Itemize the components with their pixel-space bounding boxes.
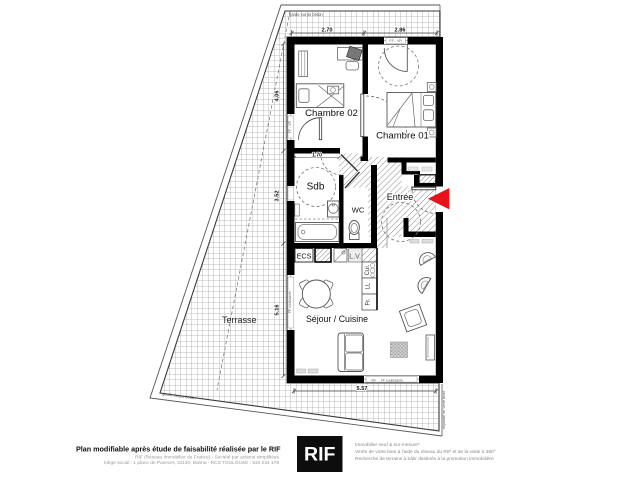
svg-text:4.06: 4.06 — [275, 91, 281, 102]
svg-text:ECS: ECS — [297, 252, 312, 261]
svg-text:FF coulissante: FF coulissante — [381, 378, 403, 382]
svg-text:Entrée: Entrée — [387, 192, 414, 202]
svg-text:Sdb: Sdb — [307, 182, 325, 193]
svg-text:RIF (Réseau Immobilier de Fran: RIF (Réseau Immobilier de France) - Soci… — [135, 454, 280, 460]
svg-text:RIF: RIF — [304, 444, 336, 466]
svg-text:Terrasse: Terrasse — [222, 315, 257, 325]
svg-text:2.70: 2.70 — [322, 28, 333, 34]
svg-text:Recherche de terrains à bâtir: Recherche de terrains à bâtir destinés à… — [355, 456, 494, 462]
svg-text:garde corps béton: garde corps béton — [289, 12, 323, 17]
svg-text:Siège social : 1 place de Pave: Siège social : 1 place de Paveurs, 31130… — [104, 460, 280, 466]
svg-text:Immobilier neuf & sur-mesure*: Immobilier neuf & sur-mesure* — [355, 442, 420, 448]
svg-text:2.86: 2.86 — [395, 28, 406, 34]
svg-text:WC: WC — [352, 206, 365, 215]
svg-text:Séjour / Cuisine: Séjour / Cuisine — [306, 314, 368, 324]
svg-text:1.70: 1.70 — [312, 153, 322, 159]
svg-text:3.52: 3.52 — [275, 191, 281, 202]
svg-text:Chambre 02: Chambre 02 — [305, 108, 358, 119]
svg-text:FF - VR: FF - VR — [389, 39, 402, 43]
svg-text:Chambre 01: Chambre 01 — [376, 131, 429, 142]
svg-text:LL: LL — [366, 282, 372, 289]
svg-text:Fr.: Fr. — [366, 298, 372, 305]
svg-text:séparatif en verre brisé: séparatif en verre brisé — [442, 391, 446, 430]
svg-text:FF - VR: FF - VR — [288, 121, 292, 133]
svg-text:Vente de votre bien à l'aide d: Vente de votre bien à l'aide du réseau d… — [355, 449, 496, 455]
svg-text:Plan modifiable après étude de: Plan modifiable après étude de faisabili… — [76, 444, 281, 453]
svg-text:5.57: 5.57 — [357, 386, 368, 392]
svg-text:VR: VR — [371, 378, 376, 382]
svg-text:5.16: 5.16 — [275, 305, 281, 316]
svg-text:FF coulissante: FF coulissante — [288, 291, 292, 313]
svg-text:L.V.: L.V. — [349, 253, 361, 260]
